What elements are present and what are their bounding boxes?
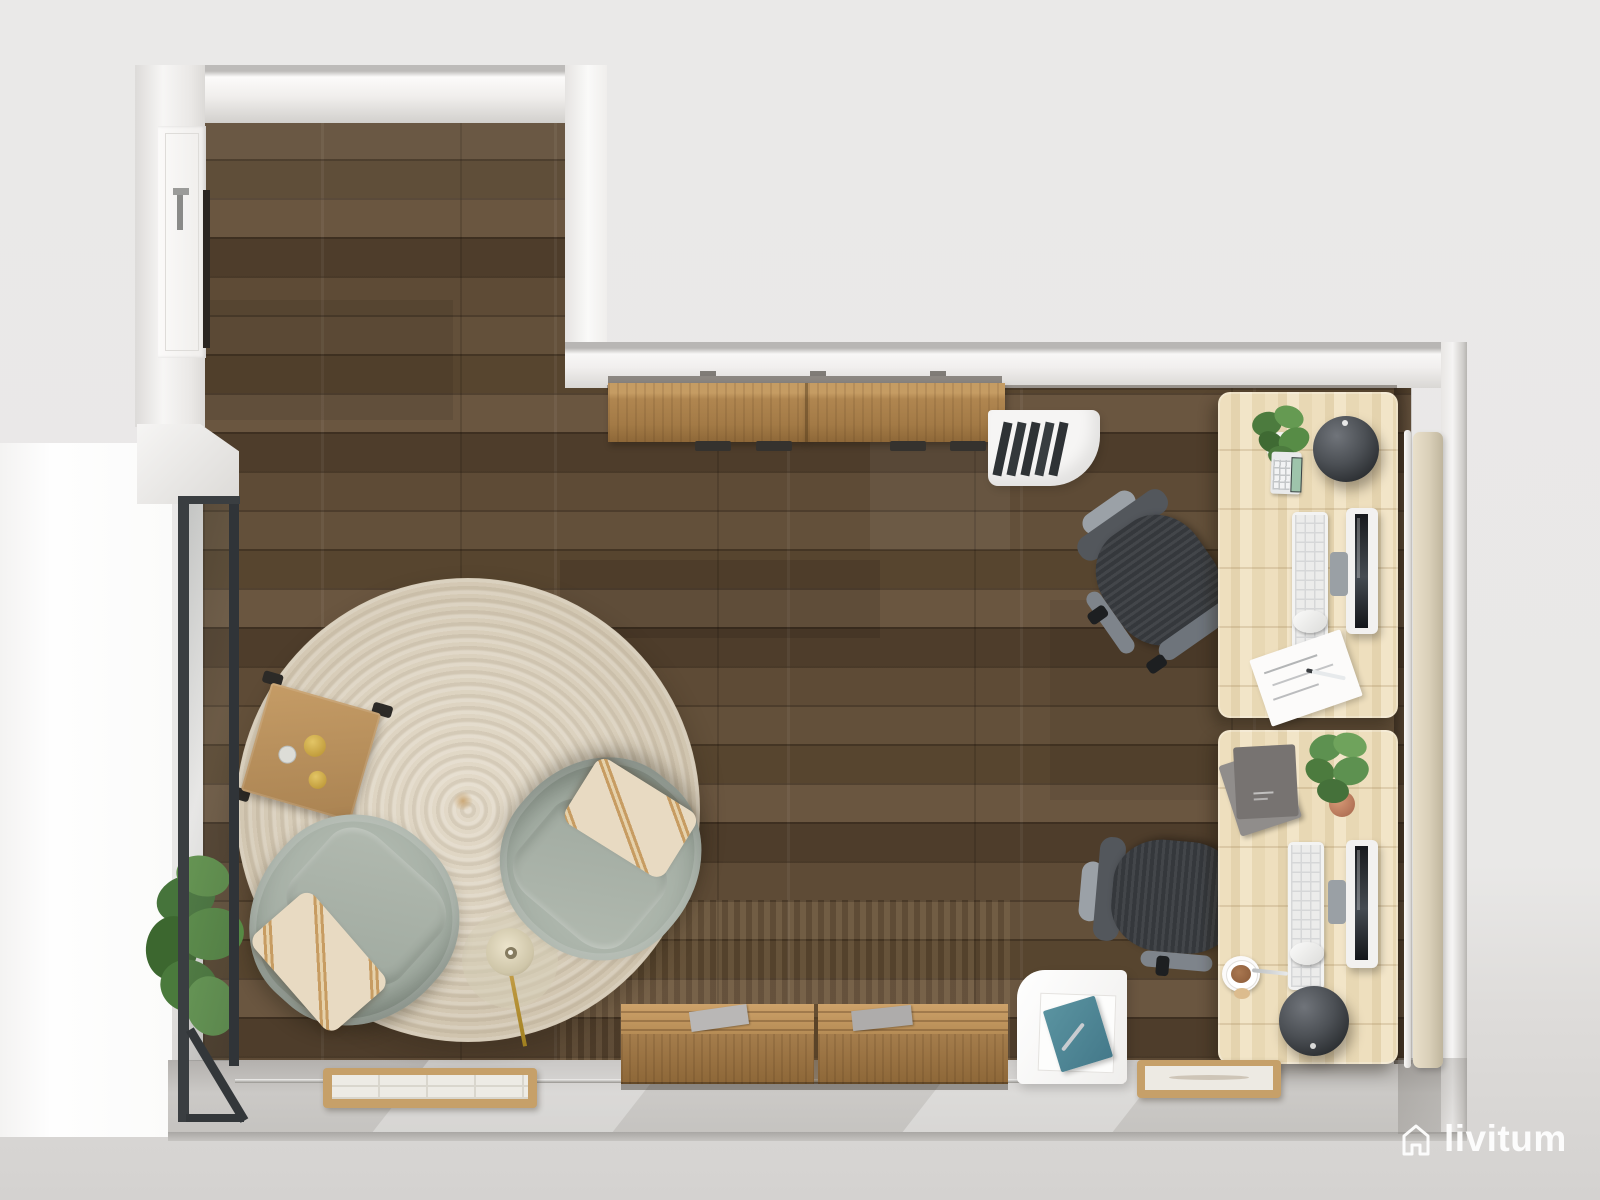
monitor-reflection [1357, 850, 1360, 910]
sideboard-open-top [818, 1004, 1008, 1034]
sideboard-top-2 [805, 383, 1005, 442]
wood-plank-patch [203, 300, 453, 420]
door-panel-inset [165, 133, 199, 351]
mouse-top [1293, 610, 1327, 633]
tray-inner [1145, 1066, 1273, 1090]
desk-plant [1303, 733, 1375, 825]
monitor-stand-top [1330, 552, 1348, 596]
calculator-display [1290, 457, 1302, 492]
calculator-keys [1272, 460, 1290, 491]
monitor-bottom [1346, 840, 1378, 968]
entry-door [158, 126, 206, 358]
mouse-bottom [1290, 942, 1324, 965]
monitor-top [1346, 508, 1378, 634]
keyboard-keys [1291, 845, 1321, 987]
shoe-tray-right [1137, 1060, 1281, 1098]
sideboard-top-1 [608, 383, 805, 442]
wood-plank-patch [203, 120, 565, 200]
sideboard-foot [890, 441, 926, 451]
floor-lamp-bulb [508, 950, 513, 955]
monitor-stand-bottom [1328, 880, 1346, 924]
floorplan-render: livitum [0, 0, 1600, 1200]
coffee [1231, 965, 1251, 983]
sideboard-foot [756, 441, 792, 451]
pen [1306, 668, 1346, 680]
right-wall [1441, 342, 1467, 1140]
rug-knot [452, 792, 474, 810]
sideboard-front [818, 1034, 1008, 1084]
glass-frame-top [178, 496, 240, 504]
notebook-title [1253, 791, 1273, 794]
sketch-line [1273, 683, 1319, 701]
glass-frame-bottom [186, 1114, 244, 1122]
sideboard-shadow [621, 1082, 1008, 1090]
nook-right-wall [565, 65, 607, 347]
decor-sphere-top [1313, 416, 1379, 482]
nook-top-wall [135, 65, 607, 123]
sphere-knob [1310, 1043, 1316, 1049]
house-icon [1398, 1121, 1434, 1157]
tray-sketch [1169, 1075, 1249, 1080]
watermark-text: livitum [1444, 1118, 1567, 1160]
cable-grommet [930, 371, 946, 376]
cable-grommet [810, 371, 826, 376]
sideboard-foot [695, 441, 731, 451]
sphere-knob [1342, 420, 1348, 426]
bottom-wall-edge [168, 1132, 1467, 1141]
notebook [1233, 744, 1299, 819]
sideboard-front [621, 1034, 814, 1084]
shoe-tray-left [323, 1068, 537, 1108]
glass-frame-right [229, 496, 239, 1066]
window-rod [1404, 430, 1411, 1068]
cable-grommet [700, 371, 716, 376]
sideboard-foot [950, 441, 986, 451]
glass-panel [188, 499, 235, 1061]
door-frame-shadow [203, 190, 210, 348]
calculator [1270, 451, 1301, 494]
notebook-title [1254, 798, 1268, 801]
coffee-cup-set [1222, 948, 1294, 1004]
tray-inner [332, 1075, 528, 1099]
monitor-reflection [1357, 518, 1360, 578]
watermark: livitum [1398, 1118, 1567, 1160]
radiator-panel [1413, 432, 1443, 1068]
chair-wheel [1155, 955, 1170, 976]
storage-cabinet [1017, 970, 1127, 1084]
biscuit [1234, 988, 1250, 999]
door-handle [173, 188, 189, 195]
notebook-stack [1220, 741, 1309, 839]
glass-frame-left [178, 496, 189, 1122]
